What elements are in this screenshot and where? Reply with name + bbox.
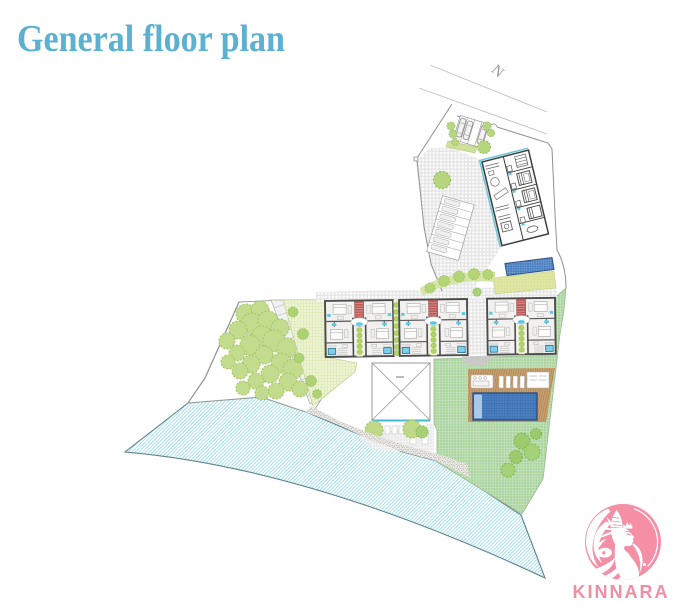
svg-text:General floor plan: General floor plan	[17, 18, 285, 60]
svg-text:KINNARA: KINNARA	[573, 582, 670, 602]
